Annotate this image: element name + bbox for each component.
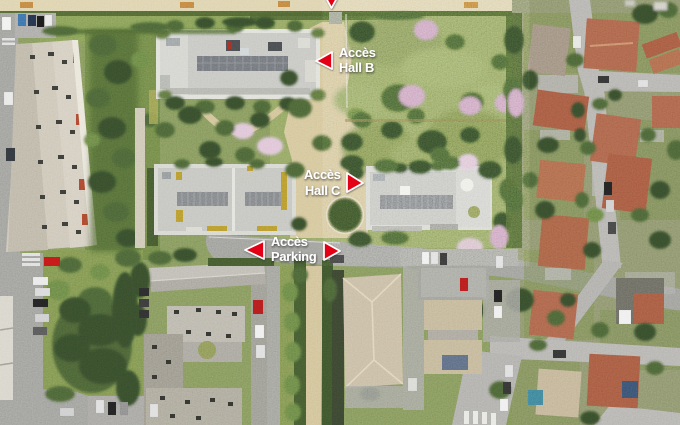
- svg-text:Accès: Accès: [304, 167, 341, 182]
- svg-text:Hall C: Hall C: [305, 183, 340, 198]
- svg-text:Accès: Accès: [339, 45, 376, 60]
- svg-text:Hall B: Hall B: [339, 60, 374, 75]
- svg-text:Parking: Parking: [271, 249, 317, 264]
- svg-text:Accès: Accès: [271, 234, 308, 249]
